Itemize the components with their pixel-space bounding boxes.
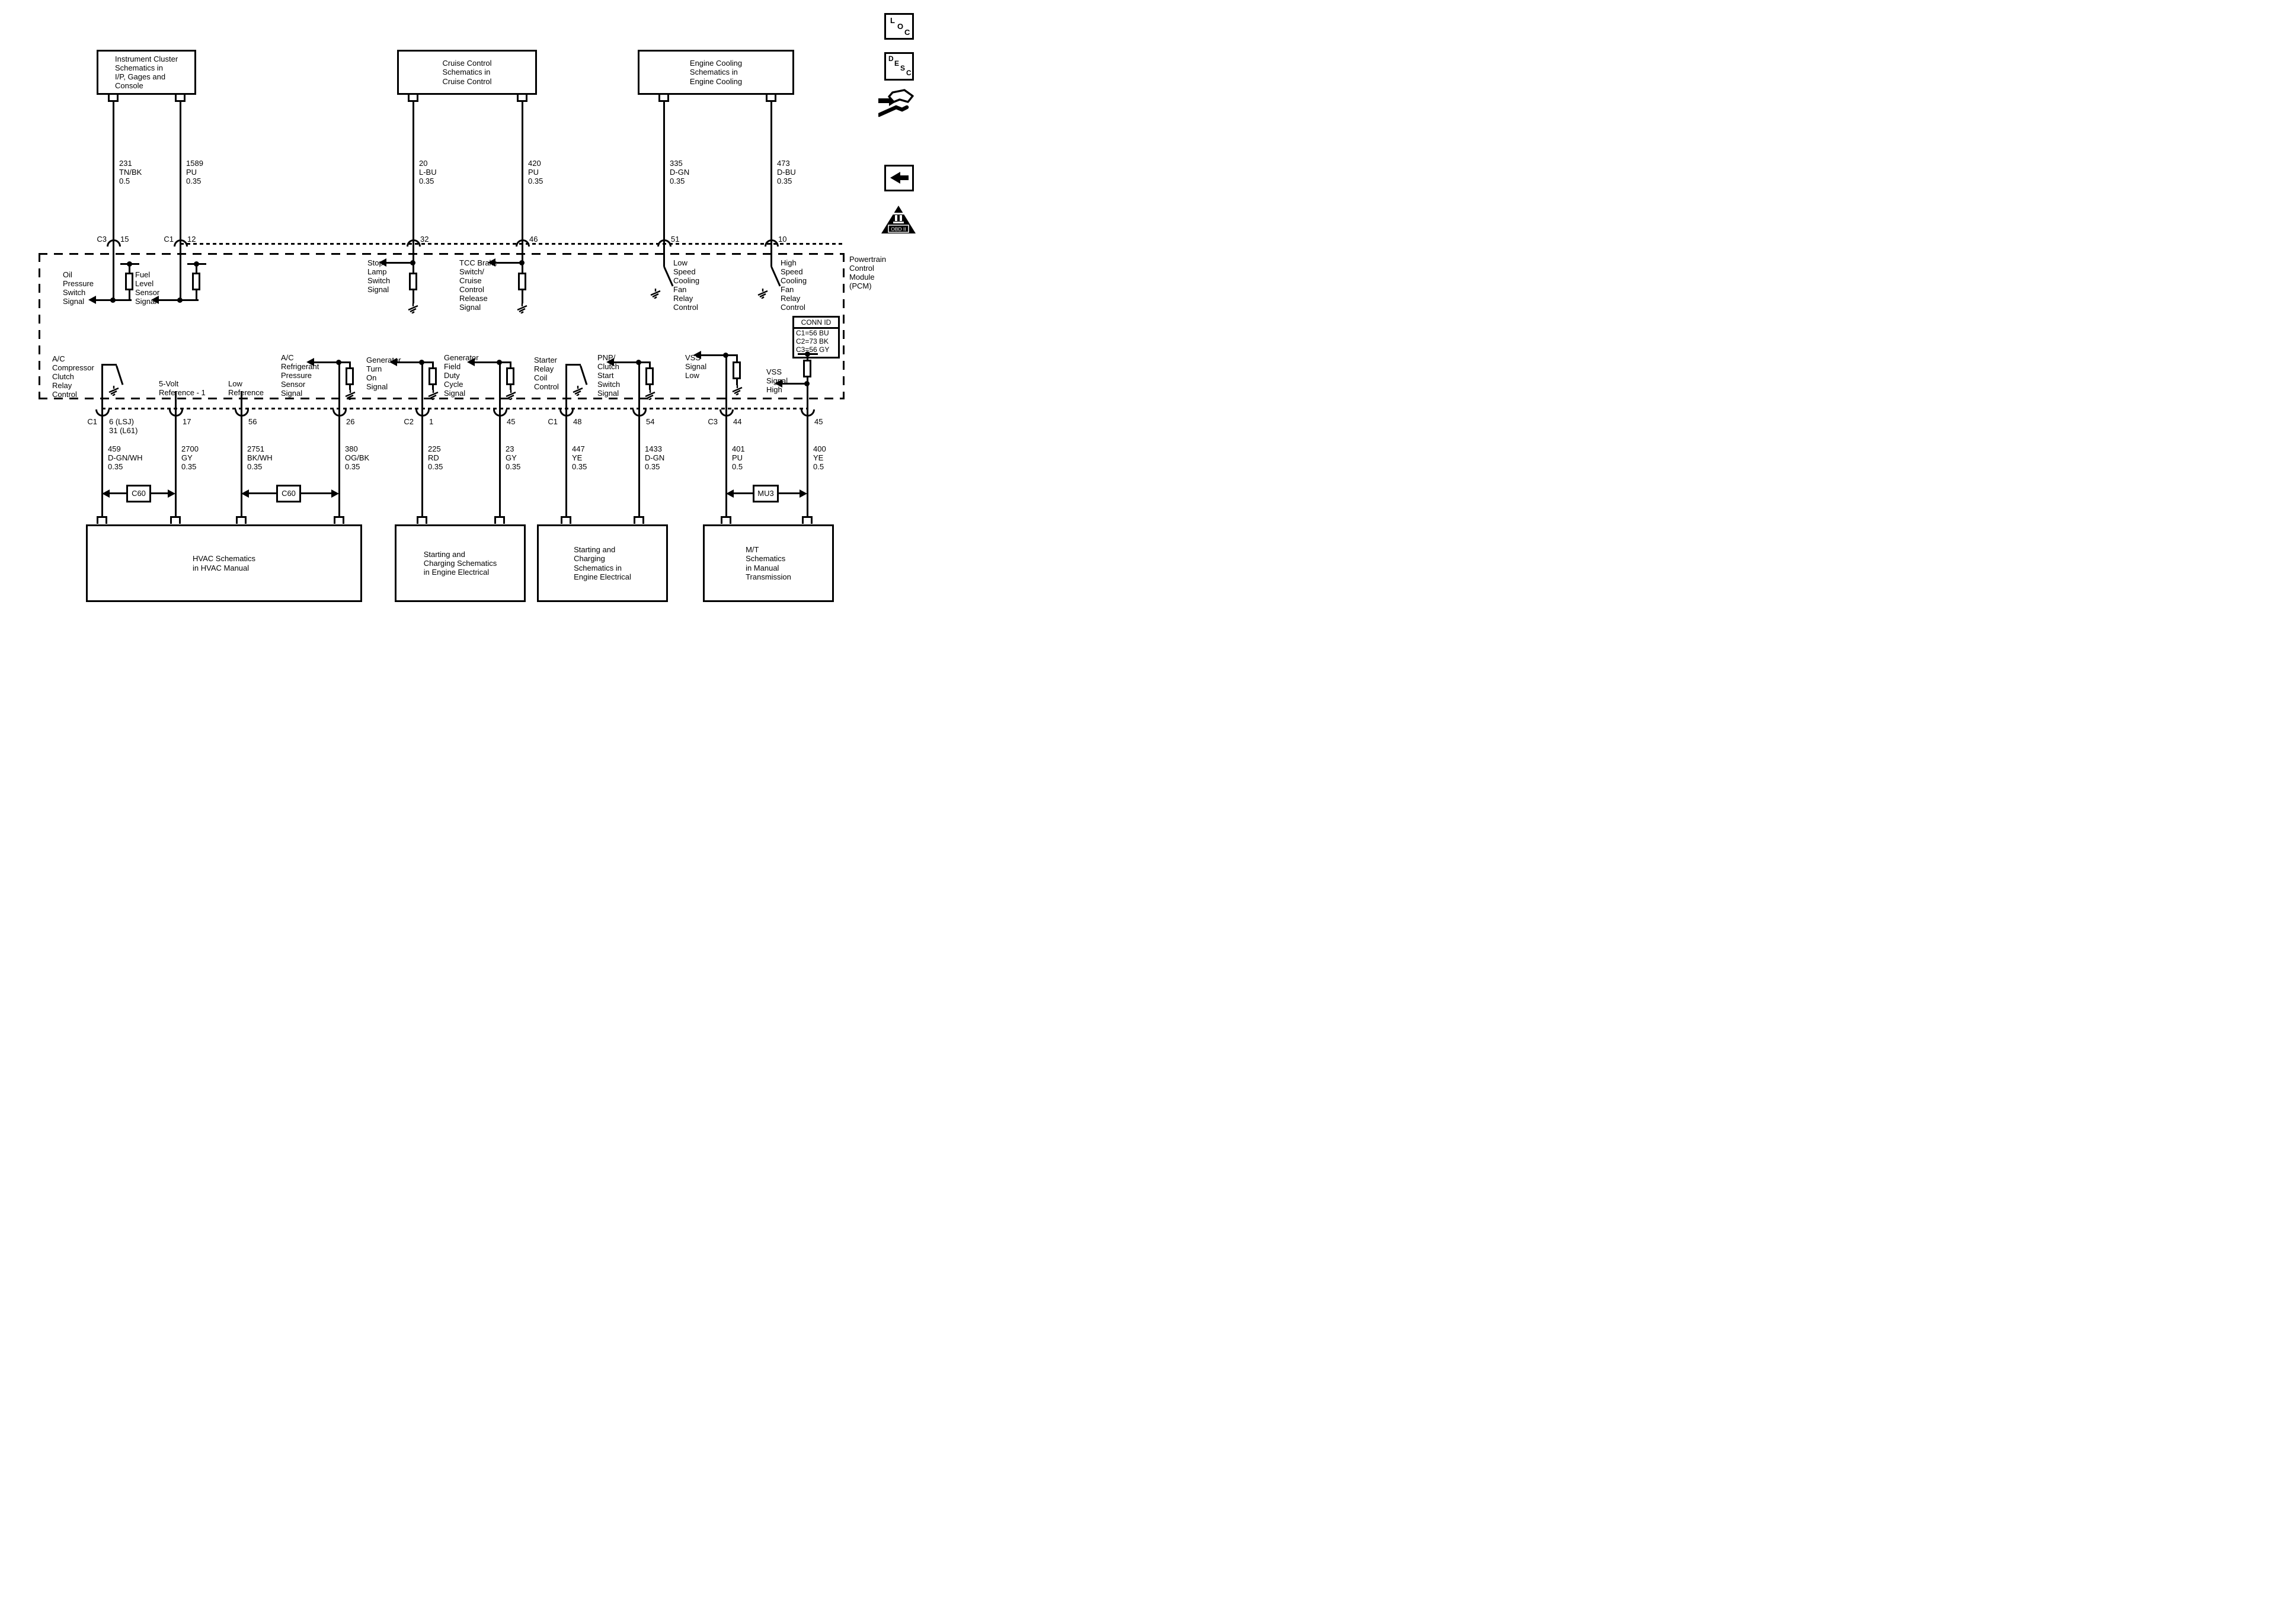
wire-label: 225 RD 0.35 <box>428 444 443 471</box>
wire-label: 1433 D-GN 0.35 <box>645 444 664 471</box>
signal-label: Low Reference <box>228 379 264 397</box>
pin-number: 1 <box>429 417 433 426</box>
pin-number: 32 <box>420 235 428 244</box>
terminal-stub <box>517 95 527 102</box>
pin-number: 45 <box>507 417 515 426</box>
conn-id-rows: C1=56 BU C2=73 BK C3=56 GY <box>794 329 838 355</box>
switch-bar <box>565 364 581 366</box>
wire-internal <box>510 363 511 367</box>
wire-internal <box>349 385 351 390</box>
arrow-left-icon <box>693 351 701 359</box>
wire-20 <box>412 102 414 253</box>
inline-connector-label: C60 <box>132 489 146 498</box>
terminal-stub <box>802 516 813 524</box>
pin-number: 48 <box>573 417 581 426</box>
wrench-pointer-icon[interactable] <box>878 89 916 123</box>
resistor-symbol <box>803 360 811 377</box>
connector-row-line <box>102 408 808 409</box>
connector-arc <box>493 409 507 417</box>
pin-number: 45 <box>814 417 823 426</box>
pin-number: 54 <box>646 417 654 426</box>
connector-id: C1 <box>154 235 174 244</box>
wire-label: 459 D-GN/WH 0.35 <box>108 444 143 471</box>
switch-symbol <box>116 366 123 385</box>
arrow-left-icon <box>88 296 96 304</box>
ref-box-starting-charging-2[interactable]: Starting and Charging Schematics in Engi… <box>537 524 668 602</box>
ground-icon <box>644 390 656 400</box>
signal-arrow <box>701 354 738 356</box>
terminal-stub <box>766 95 776 102</box>
resistor-symbol <box>409 273 417 290</box>
ground-icon <box>505 390 517 400</box>
desc-letter: D <box>888 55 894 63</box>
inline-connector-label: MU3 <box>757 489 773 498</box>
switch-bar <box>101 364 117 366</box>
terminal-stub <box>494 516 505 524</box>
connector-row-line <box>180 243 845 245</box>
ref-box-label: Engine Cooling Schematics in Engine Cool… <box>690 59 742 85</box>
wire-internal <box>412 290 414 303</box>
wire-internal <box>649 363 651 367</box>
arrow-left-icon <box>726 489 734 498</box>
pin-number: 6 (LSJ) 31 (L61) <box>109 417 137 435</box>
arrow-left-icon <box>151 296 159 304</box>
arrow-left-icon <box>389 358 397 366</box>
wire-label: 20 L-BU 0.35 <box>419 159 437 185</box>
ref-box-cruise-control[interactable]: Cruise Control Schematics in Cruise Cont… <box>397 50 537 95</box>
connector-arc <box>169 409 183 417</box>
wire-label: 1589 PU 0.35 <box>186 159 203 185</box>
pin-number: 26 <box>346 417 354 426</box>
connector-arrow-line <box>301 492 331 494</box>
signal-arrow <box>782 383 807 385</box>
ground-icon <box>731 385 743 395</box>
terminal-stub <box>417 516 427 524</box>
resistor-symbol <box>645 367 654 385</box>
resistor-symbol <box>125 273 133 290</box>
arrow-left-icon <box>241 489 249 498</box>
ref-box-label: Starting and Charging Schematics in Engi… <box>574 545 631 581</box>
connector-arrow-line <box>779 492 800 494</box>
arrow-left-icon <box>379 258 386 267</box>
wire-internal <box>432 385 434 390</box>
ref-box-label: Cruise Control Schematics in Cruise Cont… <box>442 59 491 85</box>
wire-1589 <box>180 102 181 253</box>
signal-label: Starter Relay Coil Control <box>534 356 559 391</box>
back-button[interactable] <box>884 165 914 191</box>
wire-label: 447 YE 0.35 <box>572 444 587 471</box>
ground-icon <box>407 303 419 313</box>
connector-arrow-line <box>249 492 276 494</box>
arrow-right-icon <box>800 489 807 498</box>
wire-internal <box>421 363 423 516</box>
signal-arrow <box>386 262 413 264</box>
wire-internal <box>736 379 738 385</box>
arrow-left-icon <box>102 489 110 498</box>
inline-connector-label: C60 <box>282 489 296 498</box>
wire-internal <box>129 265 130 273</box>
pin-number: 51 <box>671 235 679 244</box>
connector-arc <box>332 409 347 417</box>
wire-label: 400 YE 0.5 <box>813 444 826 471</box>
wire-label: 2751 BK/WH 0.35 <box>247 444 273 471</box>
ref-box-label: M/T Schematics in Manual Transmission <box>746 545 791 581</box>
wire-420 <box>522 102 523 253</box>
wire-internal <box>113 253 114 301</box>
connector-arc <box>415 409 430 417</box>
desc-letter: S <box>900 64 905 72</box>
wire-internal <box>349 363 351 367</box>
resistor-symbol <box>506 367 514 385</box>
pcm-border-right <box>843 253 845 399</box>
connector-id: C3 <box>87 235 107 244</box>
connector-arc <box>765 239 779 247</box>
terminal-stub <box>721 516 731 524</box>
pin-number: 12 <box>187 235 196 244</box>
wire-internal <box>638 363 640 516</box>
signal-arrow <box>314 361 351 363</box>
ground-icon <box>427 390 439 400</box>
signal-label: Low Speed Cooling Fan Relay Control <box>673 258 699 312</box>
arrow-left-icon <box>467 358 475 366</box>
resistor-symbol <box>518 273 526 290</box>
back-arrow-icon <box>890 172 900 184</box>
wire-internal <box>522 264 523 273</box>
terminal-stub <box>634 516 644 524</box>
wire-label: 473 D-BU 0.35 <box>777 159 796 185</box>
wire-internal <box>736 356 738 361</box>
wire-label: 335 D-GN 0.35 <box>670 159 689 185</box>
wire-internal <box>499 363 501 516</box>
resistor-symbol <box>346 367 354 385</box>
wire-internal <box>522 290 523 303</box>
connector-arc <box>559 409 574 417</box>
ref-box-starting-charging-1[interactable]: Starting and Charging Schematics in Engi… <box>395 524 526 602</box>
wire-label: 380 OG/BK 0.35 <box>345 444 369 471</box>
ref-box-label: Starting and Charging Schematics in Engi… <box>424 550 497 577</box>
inline-connector-mu3[interactable]: MU3 <box>753 485 779 502</box>
loc-letter: L <box>890 16 895 25</box>
terminal-stub <box>658 95 669 102</box>
wire-internal <box>196 290 197 300</box>
wire-label: 420 PU 0.35 <box>528 159 543 185</box>
ground-icon <box>108 386 120 396</box>
switch-symbol <box>580 366 587 385</box>
inline-connector-c60[interactable]: C60 <box>276 485 301 502</box>
wire-internal <box>432 363 434 367</box>
pin-number: 46 <box>529 235 538 244</box>
arrow-right-icon <box>168 489 175 498</box>
signal-arrow <box>397 361 434 363</box>
wire-internal <box>807 355 808 360</box>
ref-box-instrument-cluster[interactable]: Instrument Cluster Schematics in I/P, Ga… <box>97 50 196 95</box>
loc-button[interactable]: L O C <box>884 13 914 40</box>
signal-label: A/C Compressor Clutch Relay Control <box>52 354 94 399</box>
signal-label: 5-Volt Reference - 1 <box>159 379 206 397</box>
wire-internal <box>770 253 772 267</box>
connector-arc <box>95 409 110 417</box>
wire-label: 231 TN/BK 0.5 <box>119 159 142 185</box>
wire-335 <box>663 102 665 253</box>
pcm-label: Powertrain Control Module (PCM) <box>849 255 886 290</box>
connector-arc <box>720 409 734 417</box>
pcm-border-bottom <box>39 398 845 399</box>
terminal-stub <box>170 516 181 524</box>
connector-id: C1 <box>538 417 558 426</box>
loc-letter: C <box>904 28 910 37</box>
signal-label: High Speed Cooling Fan Relay Control <box>781 258 807 312</box>
connector-arc <box>801 409 815 417</box>
wire-internal <box>412 264 414 273</box>
wire-internal <box>196 265 197 273</box>
pin-number: 44 <box>733 417 741 426</box>
connector-arc <box>516 239 530 247</box>
wire-label: 23 GY 0.35 <box>506 444 520 471</box>
pcm-border-top <box>39 253 845 255</box>
connector-arc <box>107 239 121 247</box>
ground-icon <box>650 289 661 299</box>
arrow-left-icon <box>488 258 495 267</box>
desc-letter: C <box>906 69 912 77</box>
arrow-left-icon <box>306 358 314 366</box>
resistor-symbol <box>733 361 741 379</box>
ground-icon <box>344 390 356 400</box>
signal-arrow <box>475 361 511 363</box>
connector-id: C2 <box>394 417 414 426</box>
ground-icon <box>757 289 769 299</box>
junction-dot <box>177 297 183 303</box>
wire-internal <box>663 253 665 267</box>
switch-symbol <box>770 266 781 286</box>
ref-box-label: HVAC Schematics in HVAC Manual <box>193 554 255 572</box>
connector-id: C3 <box>698 417 718 426</box>
obd2-icon[interactable]: OBD II <box>881 205 916 236</box>
pcm-border-left <box>39 253 40 399</box>
pin-number: 10 <box>778 235 786 244</box>
conn-id-table: CONN ID C1=56 BU C2=73 BK C3=56 GY <box>792 316 840 359</box>
connector-id: C1 <box>77 417 97 426</box>
wire-internal <box>129 290 130 300</box>
junction-dot <box>110 297 116 303</box>
ref-box-engine-cooling[interactable]: Engine Cooling Schematics in Engine Cool… <box>638 50 794 95</box>
ref-box-label: Instrument Cluster Schematics in I/P, Ga… <box>115 55 178 90</box>
arrow-right-icon <box>331 489 339 498</box>
connector-arrow-line <box>151 492 168 494</box>
resistor-symbol <box>192 273 200 290</box>
desc-letter: E <box>894 59 899 68</box>
terminal-stub <box>408 95 418 102</box>
connector-arc <box>407 239 421 247</box>
conn-id-title: CONN ID <box>794 318 838 329</box>
pin-number: 56 <box>248 417 257 426</box>
switch-symbol <box>663 266 673 286</box>
connector-arc <box>632 409 647 417</box>
arrow-left-icon <box>606 358 614 366</box>
terminal-stub <box>108 95 119 102</box>
connector-arrow-line <box>734 492 753 494</box>
terminal-stub <box>175 95 186 102</box>
wire-231 <box>113 102 114 253</box>
connector-arc <box>174 239 188 247</box>
connector-arc <box>235 409 249 417</box>
resistor-symbol <box>428 367 437 385</box>
signal-arrow <box>495 262 522 264</box>
desc-button[interactable]: D E S C <box>884 52 914 81</box>
ref-box-hvac[interactable]: HVAC Schematics in HVAC Manual <box>86 524 362 602</box>
arrow-left-icon <box>775 379 782 388</box>
wire-label: 2700 GY 0.35 <box>181 444 199 471</box>
inline-connector-c60[interactable]: C60 <box>126 485 151 502</box>
back-arrow-shaft <box>900 175 909 180</box>
wire-internal <box>180 253 181 301</box>
wire-internal <box>649 385 651 390</box>
wire-label: 401 PU 0.5 <box>732 444 745 471</box>
terminal-stub <box>97 516 107 524</box>
pin-number: 17 <box>183 417 191 426</box>
wire-internal <box>510 385 511 390</box>
ground-icon <box>572 386 584 396</box>
terminal-stub <box>236 516 247 524</box>
terminal-stub <box>561 516 571 524</box>
loc-letter: O <box>897 22 903 31</box>
signal-arrow <box>614 361 651 363</box>
pin-number: 15 <box>120 235 129 244</box>
connector-arc <box>657 239 671 247</box>
ref-box-manual-transmission[interactable]: M/T Schematics in Manual Transmission <box>703 524 834 602</box>
wiring-diagram: Instrument Cluster Schematics in I/P, Ga… <box>0 0 918 644</box>
obd2-label: OBD II <box>891 226 906 232</box>
wire-473 <box>770 102 772 253</box>
wire-internal <box>565 365 567 516</box>
ground-icon <box>516 303 528 313</box>
connector-arrow-line <box>110 492 126 494</box>
terminal-stub <box>334 516 344 524</box>
